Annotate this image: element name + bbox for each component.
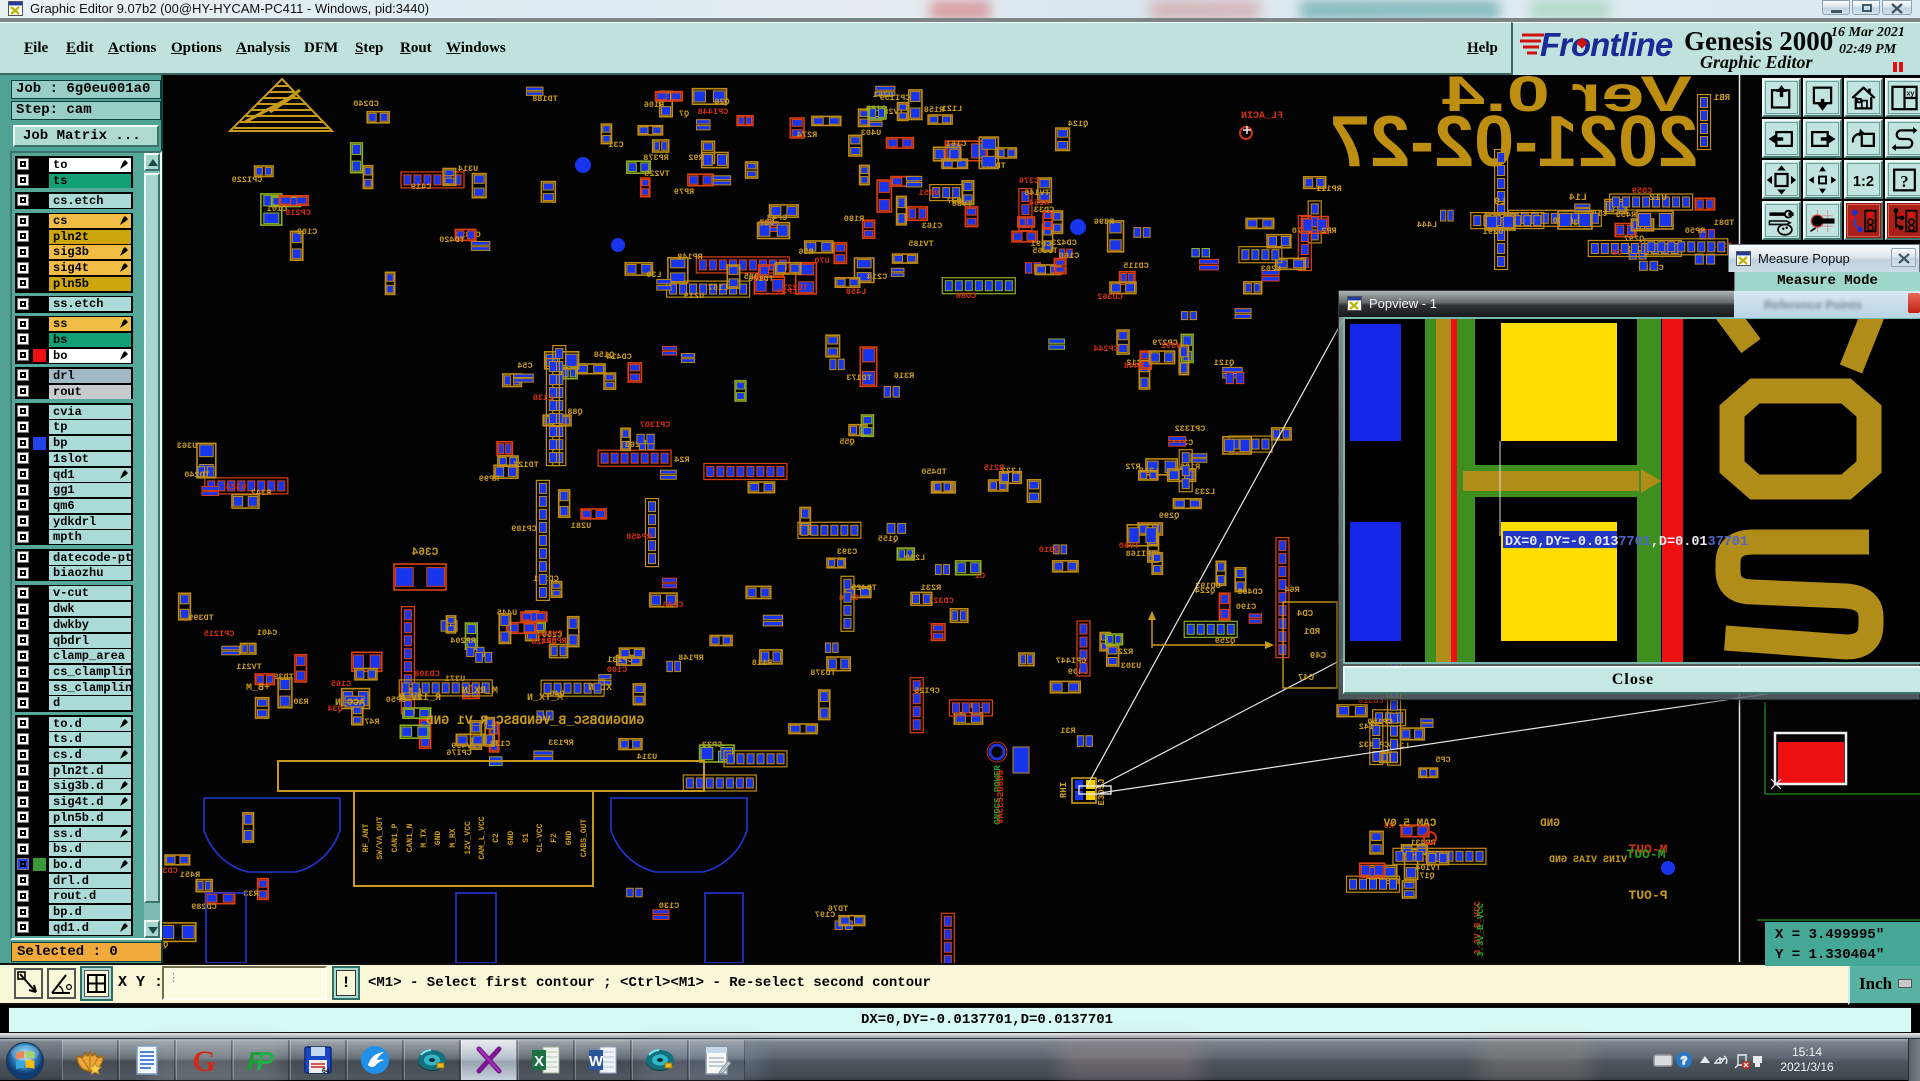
svg-text:C163: C163 — [922, 221, 942, 231]
svg-text:RHI: RHI — [1059, 782, 1069, 798]
svg-text:FL_ACIN: FL_ACIN — [1241, 111, 1283, 122]
svg-text:L30: L30 — [646, 270, 661, 280]
svg-text:F2: F2 — [550, 833, 559, 843]
svg-text:TD176: TD176 — [748, 274, 774, 284]
svg-text:64: 64 — [322, 1068, 330, 1075]
svg-text:CP5: CP5 — [1435, 755, 1450, 765]
svg-text:C54: C54 — [517, 361, 532, 371]
svg-text:P: P — [256, 1046, 274, 1076]
svg-text:M-OUT: M-OUT — [1626, 847, 1665, 862]
svg-text:CP218: CP218 — [285, 208, 311, 218]
svg-text:R64: R64 — [1284, 585, 1299, 595]
svg-text:GND: GND — [507, 831, 516, 846]
svg-text:Q28: Q28 — [714, 97, 729, 107]
svg-text:CPI447: CPI447 — [1056, 656, 1087, 666]
svg-text:ACC_N: ACC_N — [335, 698, 365, 709]
svg-text:CPI31: CPI31 — [607, 655, 633, 665]
svg-text:TV185: TV185 — [908, 239, 934, 249]
svg-text:Q297: Q297 — [1624, 234, 1644, 244]
svg-text:L138: L138 — [533, 393, 553, 403]
svg-text:CPI25: CPI25 — [914, 686, 940, 696]
svg-text:M_RX: M_RX — [449, 828, 458, 847]
svg-text:Q345: Q345 — [163, 940, 168, 950]
svg-text:U303: U303 — [1121, 661, 1141, 671]
svg-text:R24: R24 — [674, 455, 689, 465]
svg-text:C1: C1 — [975, 571, 985, 581]
svg-text:L167: L167 — [708, 283, 728, 293]
svg-text:U403: U403 — [861, 128, 881, 138]
svg-text:U70: U70 — [814, 256, 829, 266]
svg-text:C31: C31 — [608, 140, 623, 150]
svg-text:TD425: TD425 — [851, 583, 877, 593]
svg-text:L9: L9 — [1494, 197, 1506, 208]
svg-text:SW/VA_OUT: SW/VA_OUT — [376, 816, 385, 859]
svg-text:C101: C101 — [267, 204, 287, 214]
svg-text:R316: R316 — [894, 371, 914, 381]
svg-text:TD188: TD188 — [532, 94, 558, 104]
svg-text:RP133: RP133 — [548, 738, 574, 748]
svg-text:TV146: TV146 — [1024, 188, 1050, 198]
svg-text:L233: L233 — [1195, 487, 1215, 497]
svg-text:CD423: CD423 — [1051, 238, 1077, 248]
svg-text:C419: C419 — [411, 182, 431, 192]
svg-text:CPI229: CPI229 — [232, 175, 263, 185]
svg-text:Q224: Q224 — [1195, 586, 1215, 596]
svg-text:C376: C376 — [1019, 176, 1039, 186]
svg-text:R180: R180 — [844, 214, 864, 224]
svg-text:R396: R396 — [1094, 217, 1114, 227]
svg-text:U392: U392 — [1161, 341, 1181, 351]
svg-text:TD81: TD81 — [1714, 218, 1734, 228]
svg-text:RP148: RP148 — [678, 653, 704, 663]
svg-text:Q158: Q158 — [594, 350, 614, 360]
svg-text:+B_M: +B_M — [246, 683, 270, 694]
svg-text:Q88: Q88 — [567, 407, 582, 417]
svg-text:CAM_L_VCC: CAM_L_VCC — [478, 816, 487, 859]
svg-text:Q55: Q55 — [839, 437, 854, 447]
svg-text:CAM_5.0V: CAM_5.0V — [1383, 818, 1436, 830]
svg-text:R215: R215 — [984, 463, 1004, 473]
svg-text:2021-02-27: 2021-02-27 — [1330, 102, 1698, 182]
svg-text:RP50: RP50 — [1685, 226, 1705, 236]
svg-text:R47: R47 — [364, 717, 379, 727]
svg-text:L458: L458 — [846, 287, 866, 297]
svg-text:?: ? — [1900, 171, 1908, 190]
svg-text:CD289: CD289 — [191, 902, 217, 912]
svg-text:C49: C49 — [1310, 651, 1326, 661]
svg-text:C6: C6 — [1612, 248, 1622, 258]
svg-text:L444: L444 — [1417, 220, 1437, 230]
svg-text:CD309: CD309 — [163, 866, 178, 876]
svg-text:TD399: TD399 — [188, 613, 214, 623]
svg-text:CP244: CP244 — [1093, 344, 1119, 354]
svg-text:R158: R158 — [924, 105, 944, 115]
svg-text:C130: C130 — [659, 901, 679, 911]
svg-text:M_TX_N: M_TX_N — [527, 693, 563, 704]
svg-text:C102: C102 — [297, 227, 317, 237]
svg-text:C165: C165 — [331, 679, 351, 689]
svg-text:TD76: TD76 — [828, 904, 848, 914]
svg-text:C2: C2 — [492, 833, 501, 843]
svg-text:Q7: Q7 — [679, 109, 689, 119]
svg-text:U323: U323 — [226, 482, 246, 492]
svg-text:CPI307: CPI307 — [640, 420, 671, 430]
svg-text:RP2: RP2 — [1321, 226, 1336, 236]
svg-text:R118: R118 — [752, 658, 772, 668]
svg-text:CD362: CD362 — [1097, 292, 1123, 302]
svg-text:C393: C393 — [837, 547, 857, 557]
svg-text:CD86: CD86 — [956, 291, 976, 301]
svg-text:CD4: CD4 — [1296, 609, 1313, 619]
svg-text:RF_ANT: RF_ANT — [362, 823, 371, 852]
svg-text:CPI76: CPI76 — [446, 748, 472, 758]
svg-text:L290: L290 — [905, 553, 925, 563]
svg-text:U281: U281 — [571, 521, 591, 531]
svg-text:C161: C161 — [946, 139, 966, 149]
svg-text:C401: C401 — [257, 628, 277, 638]
svg-text:RP378: RP378 — [643, 153, 669, 163]
svg-text:G: G — [192, 1045, 215, 1077]
svg-text:TV229: TV229 — [644, 169, 670, 179]
svg-text:3.3V_B_VCC: 3.3V_B_VCC — [1476, 902, 1486, 957]
svg-text:CD91: CD91 — [1031, 239, 1051, 249]
svg-text:DX=0,DY=-0.0137701,D=0.0137701: DX=0,DY=-0.0137701,D=0.0137701 — [1505, 535, 1748, 550]
svg-text:W: W — [589, 1053, 604, 1070]
svg-text:TV86: TV86 — [952, 199, 972, 209]
svg-text:Q121: Q121 — [1214, 358, 1234, 368]
svg-text:R274: R274 — [797, 130, 817, 140]
svg-text:M_RX_N: M_RX_N — [462, 686, 498, 697]
svg-text:U451: U451 — [919, 188, 939, 198]
svg-text:CPI215: CPI215 — [204, 629, 235, 639]
svg-text:U291: U291 — [1483, 227, 1503, 237]
svg-text:Q124: Q124 — [1068, 119, 1088, 129]
svg-text:VINS VIAS GND: VINS VIAS GND — [1549, 855, 1627, 866]
svg-text:CL-VCC: CL-VCC — [536, 823, 545, 852]
svg-text:RP99: RP99 — [479, 474, 499, 484]
svg-text:RD1: RD1 — [1303, 627, 1320, 637]
svg-text:CP428: CP428 — [531, 637, 557, 647]
svg-text:P-OUT: P-OUT — [1628, 888, 1667, 903]
svg-text:R31: R31 — [1060, 726, 1075, 736]
svg-text:GND: GND — [565, 831, 574, 846]
svg-text:GND: GND — [434, 831, 443, 846]
svg-text:Q310: Q310 — [1039, 545, 1059, 555]
svg-text:Q155: Q155 — [878, 534, 898, 544]
svg-text:TD450: TD450 — [921, 467, 947, 477]
svg-text:CP39: CP39 — [777, 287, 797, 297]
svg-text:R453: R453 — [1616, 210, 1636, 220]
svg-text:CPI448: CPI448 — [698, 107, 729, 117]
svg-text:RP79: RP79 — [674, 187, 694, 197]
svg-text:CD405: CD405 — [1237, 587, 1263, 597]
svg-text:CP150: CP150 — [1367, 717, 1393, 727]
svg-text:X: X — [534, 1053, 544, 1070]
svg-text:L203: L203 — [1261, 264, 1281, 274]
svg-text:TD240: TD240 — [184, 470, 210, 480]
svg-text:TV211: TV211 — [236, 662, 262, 672]
svg-text:C240: C240 — [663, 600, 683, 610]
svg-text:RP111: RP111 — [1316, 184, 1342, 194]
svg-text:?: ? — [1681, 1055, 1688, 1067]
svg-text:C100: C100 — [607, 665, 627, 675]
svg-text:R72: R72 — [1125, 462, 1140, 472]
svg-text:C364: C364 — [411, 547, 438, 559]
svg-text:CD33: CD33 — [1034, 205, 1054, 215]
svg-text:GNDGNDBSC_B_VGNDBSC_R_V1 GND: GNDGNDBSC_B_VGNDBSC_R_V1 GND — [426, 713, 645, 728]
svg-text:CAN1_P: CAN1_P — [391, 823, 400, 852]
svg-text:CAN1_N: CAN1_N — [406, 823, 415, 852]
svg-text:12V_VCC: 12V_VCC — [464, 821, 473, 855]
svg-text:1:2: 1:2 — [1853, 174, 1874, 190]
svg-text:U363: U363 — [177, 441, 197, 451]
svg-text:CD308: CD308 — [414, 669, 440, 679]
svg-text:U261: U261 — [873, 90, 893, 100]
svg-text:C47: C47 — [1298, 673, 1314, 683]
svg-text:R106: R106 — [644, 100, 664, 110]
svg-text:U219: U219 — [684, 291, 704, 301]
svg-text:Q299: Q299 — [1159, 511, 1179, 521]
svg-text:C190: C190 — [1236, 602, 1256, 612]
svg-text:TV50: TV50 — [1119, 541, 1139, 551]
svg-text:TD420: TD420 — [439, 235, 465, 245]
svg-text:RP204: RP204 — [450, 636, 476, 646]
svg-text:CD115: CD115 — [1123, 261, 1149, 271]
svg-text:C160: C160 — [1059, 251, 1079, 261]
svg-text:M_TX: M_TX — [420, 828, 429, 847]
svg-text:U12: U12 — [1649, 193, 1667, 204]
svg-text:TD127: TD127 — [513, 460, 539, 470]
svg-text:GND: GND — [1540, 818, 1560, 830]
svg-text:R_12V_N: R_12V_N — [399, 693, 441, 704]
svg-text:R56: R56 — [798, 247, 813, 257]
svg-text:C138: C138 — [490, 739, 510, 749]
svg-text:XL_N: XL_N — [588, 683, 612, 694]
svg-text:CD240: CD240 — [353, 99, 379, 109]
svg-text:R448: R448 — [1124, 361, 1144, 371]
svg-text:U314: U314 — [458, 164, 478, 174]
svg-text:RP148: RP148 — [677, 252, 703, 262]
svg-text:C214: C214 — [867, 272, 887, 282]
svg-text:TD378: TD378 — [810, 668, 836, 678]
svg-text:RP458: RP458 — [626, 532, 652, 542]
svg-text:VACC5200U0: VACC5200U0 — [996, 770, 1006, 824]
svg-text:CP189: CP189 — [511, 524, 537, 534]
svg-text:CABS_OUT: CABS_OUT — [580, 819, 589, 858]
svg-text:xy: xy — [1907, 90, 1915, 97]
svg-text:L14: L14 — [1569, 193, 1587, 204]
svg-text:CPI332: CPI332 — [1175, 424, 1206, 434]
svg-text:R30: R30 — [293, 697, 308, 707]
svg-text:S1: S1 — [522, 833, 531, 843]
svg-text:R231: R231 — [921, 583, 941, 593]
svg-text:RB1: RB1 — [1713, 93, 1730, 103]
svg-text:R451: R451 — [180, 870, 200, 880]
svg-text:TD173: TD173 — [846, 373, 872, 383]
